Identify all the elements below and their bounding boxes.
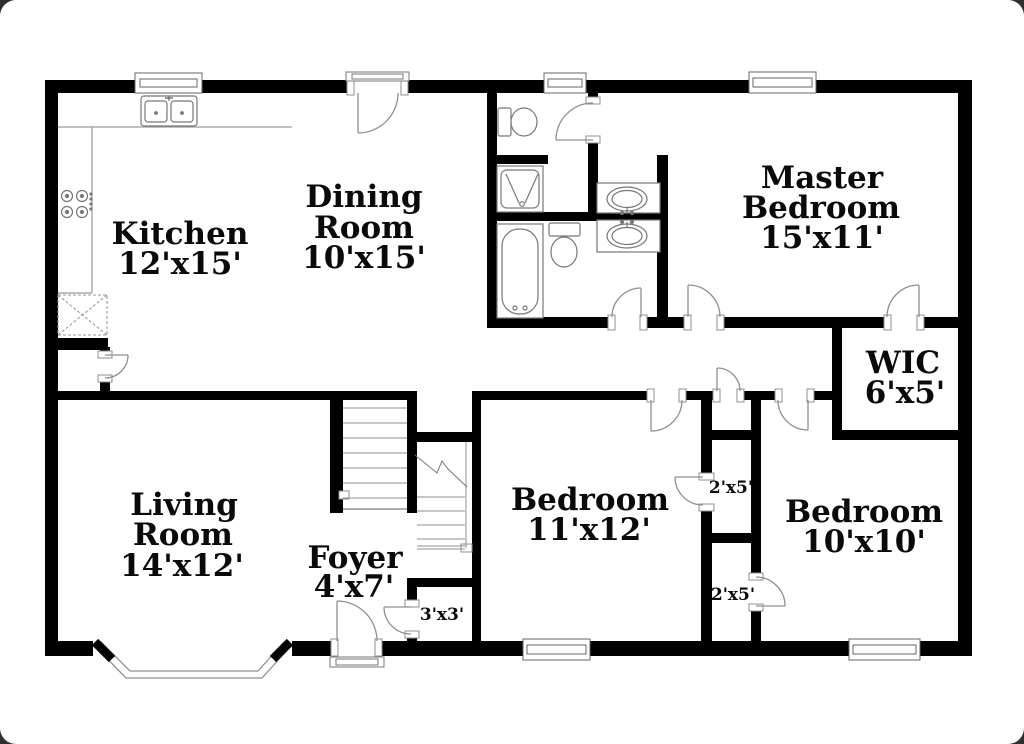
floor-plan-page: Kitchen 12'x15' Dining Room 10'x15' Mast… [0,0,1024,744]
bath-window [544,73,586,93]
front-door-threshold [330,657,384,667]
label-living-dims: 14'x12' [120,548,244,584]
label-closet-lower: 2'x5' [711,585,755,605]
master-bedroom-door [688,285,720,317]
front-door [337,601,377,641]
bedroom-10x10-window [849,639,920,660]
wall-exterior-right [958,80,972,656]
wic-door [887,285,919,317]
master-bath-door [556,103,593,140]
toilet-icon-1 [498,108,537,136]
toilet-icon-2 [549,223,580,267]
wall-stair-landing [415,432,472,442]
wall-closetA-top [712,430,751,440]
label-master-dims: 15'x11' [760,220,884,256]
floor-plan-drawing: Kitchen 12'x15' Dining Room 10'x15' Mast… [0,0,1024,744]
wall-exterior-left [45,80,58,656]
wall-bath-west [487,93,497,328]
wall-stair-divider [407,391,417,513]
bathtub-icon [497,224,543,318]
wall-closet-divider [712,533,751,543]
hall-linen-door [717,368,740,391]
vanity-sink-icon-2 [597,220,660,252]
label-bed2-dims: 11'x12' [527,512,651,548]
back-door [358,93,398,133]
wall-wic-south [832,430,958,440]
label-closet-upper: 2'x5' [709,478,753,498]
stair-lower-run [415,442,467,549]
wall-wic-west [832,328,842,440]
wall-bed2-west [472,391,481,656]
back-door-threshold [346,72,409,81]
master-window [749,72,816,93]
label-dining-dims: 10'x15' [302,240,426,276]
label-wic-dims: 6'x5' [865,375,946,411]
wall-toilet-shower [487,155,548,164]
double-sink-icon [141,96,197,126]
range-burners-icon [62,191,93,218]
label-bed3-dims: 10'x10' [802,524,926,560]
wall-closet-col-east [751,391,761,656]
wall-hall-a [58,391,417,400]
hall-bath-door [612,288,641,317]
closet-upper-door [675,477,703,505]
foyer-closet-door [384,607,411,634]
wall-closet-col-west [701,391,712,656]
label-foyer-dims: 4'x7' [314,569,395,605]
label-kitchen-dims: 12'x15' [118,246,242,282]
bedroom-10x10-door [778,400,808,430]
vanity-sink-icon-1 [597,183,660,215]
wall-hall-b [481,391,650,400]
refrigerator-icon [58,295,107,335]
bedroom-11x12-window [523,639,590,660]
bedroom-11x12-door [651,400,682,431]
wall-foyer-closet-north [410,578,472,587]
kitchen-window [135,73,202,93]
staircase [343,408,467,549]
stair-upper-run [343,408,407,509]
label-foyer-closet: 3'x3' [420,605,464,625]
shower-icon [497,166,543,212]
